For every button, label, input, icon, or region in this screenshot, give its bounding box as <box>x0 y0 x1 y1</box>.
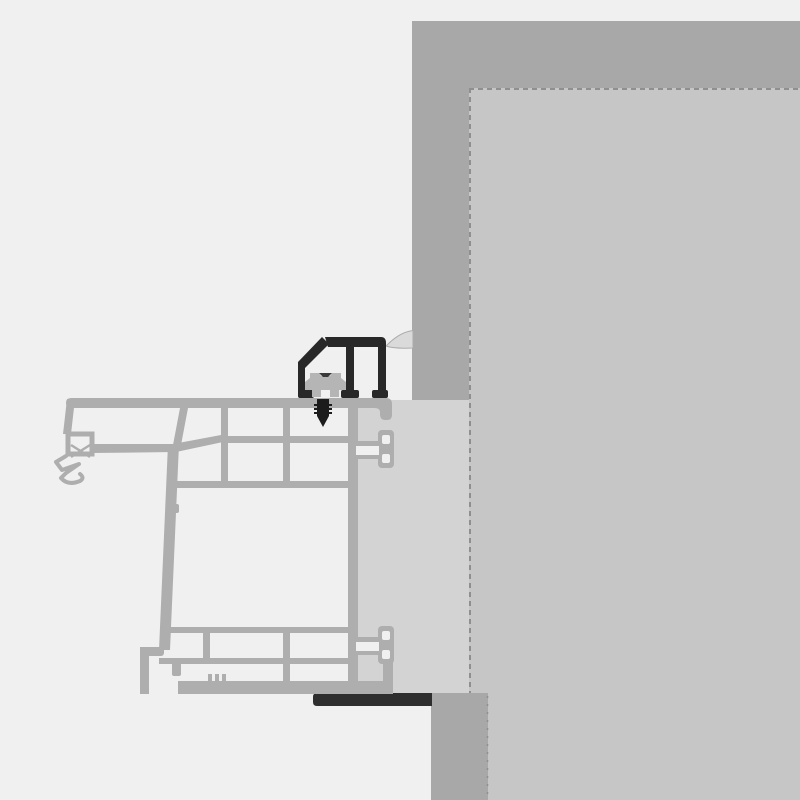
profile-divider-b <box>221 408 228 487</box>
profile-tab-upper-slot-1 <box>382 435 390 444</box>
profile-tab-lower-stem-cavity <box>356 642 379 651</box>
profile-main-chamber-top <box>168 481 350 488</box>
bracket-divider <box>346 344 354 392</box>
bracket-top-bar <box>325 337 386 347</box>
profile-top-band-hline <box>228 436 350 443</box>
profile-bottom-divider-2 <box>283 630 290 683</box>
lower-wall-column <box>431 693 488 800</box>
bracket-right-bar <box>378 344 386 392</box>
profile-tab-upper-slot-2 <box>382 454 390 463</box>
profile-wall-nub-upper <box>172 504 179 513</box>
profile-tab-lower-slot-2 <box>382 650 390 659</box>
bracket-divider-foot <box>341 390 359 398</box>
window-installation-diagram <box>0 0 800 800</box>
profile-divider-c <box>283 408 290 487</box>
inner-wall-panel <box>469 88 800 800</box>
bracket-right-foot <box>372 390 388 398</box>
profile-serration-teeth <box>208 674 226 682</box>
bracket-left-bar <box>298 362 305 392</box>
profile-foot-bar <box>140 647 149 694</box>
bottom-joint-seal <box>313 693 432 706</box>
profile-bottom-band-top <box>163 627 350 633</box>
profile-tab-upper-stem-cavity <box>356 446 379 455</box>
profile-bottom-divider-1 <box>203 630 210 661</box>
profile-foot-tooth <box>172 661 181 676</box>
profile-bottom-flange <box>178 681 393 694</box>
diagram-canvas <box>0 0 800 800</box>
profile-tab-lower-slot-1 <box>382 631 390 640</box>
bracket-left-foot <box>298 390 314 398</box>
profile-wall-nub-lower <box>165 596 172 605</box>
profile-bottom-band-mid <box>159 658 350 664</box>
